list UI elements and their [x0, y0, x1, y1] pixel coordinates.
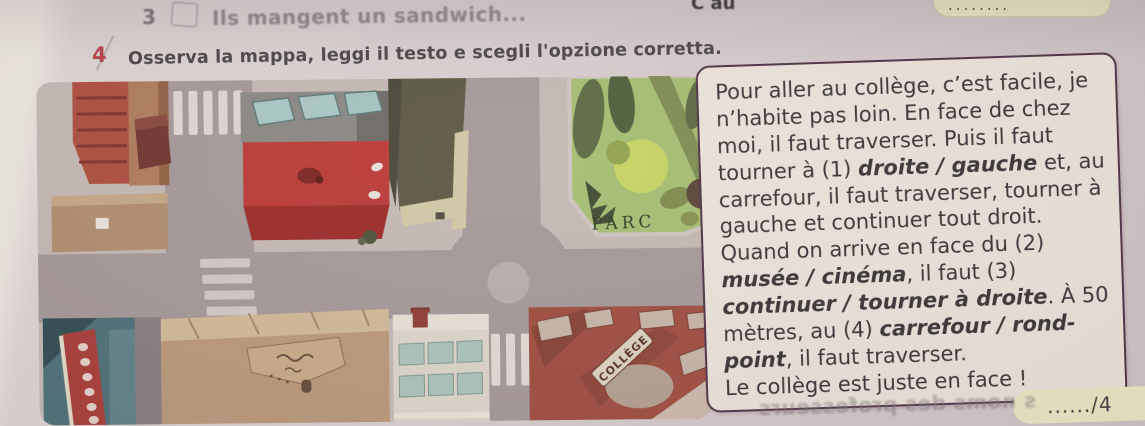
- score-badge-text: ....../4: [1047, 392, 1113, 418]
- passage-segment: , il faut (3): [906, 258, 1023, 286]
- cutoff-score-badge: ........: [933, 0, 1111, 17]
- building-skylights: [240, 91, 399, 143]
- passage-segment: musée / cinéma: [721, 262, 907, 292]
- answer-checkbox: [170, 1, 199, 28]
- building-cinema-teal: [43, 318, 136, 426]
- city-map-illustration: PARC: [36, 75, 714, 425]
- parc-label: PARC: [591, 212, 656, 235]
- exercise-number: 4: [92, 43, 107, 67]
- red-chimney: [413, 309, 428, 327]
- building-red-large: [243, 141, 390, 241]
- building-white-windows: [393, 307, 490, 422]
- building-museum: [161, 309, 390, 424]
- alley: [135, 317, 162, 424]
- passage-text: Pour aller au collège, c’est facile, je …: [715, 67, 1113, 402]
- cutoff-text-fragment: C au: [691, 0, 735, 14]
- previous-exercise-number: 3: [142, 5, 156, 29]
- park: PARC: [568, 75, 714, 234]
- textbook-page-photo: 3 Ils mangent un sandwich... C au ......…: [0, 0, 1145, 426]
- previous-exercise-text: Ils mangent un sandwich...: [212, 2, 527, 30]
- building-tan-small: [51, 193, 168, 252]
- passage-box: Pour aller au collège, c’est facile, je …: [695, 52, 1127, 413]
- passage-segment: droite / gauche: [858, 150, 1038, 180]
- building-khaki: [388, 78, 470, 231]
- building-college: COLLÈGE: [529, 305, 714, 420]
- cutoff-score-dots: ........: [948, 0, 1010, 14]
- exercise-instruction: Osserva la mappa, leggi il testo e scegl…: [128, 39, 722, 69]
- building-orange: [128, 81, 171, 185]
